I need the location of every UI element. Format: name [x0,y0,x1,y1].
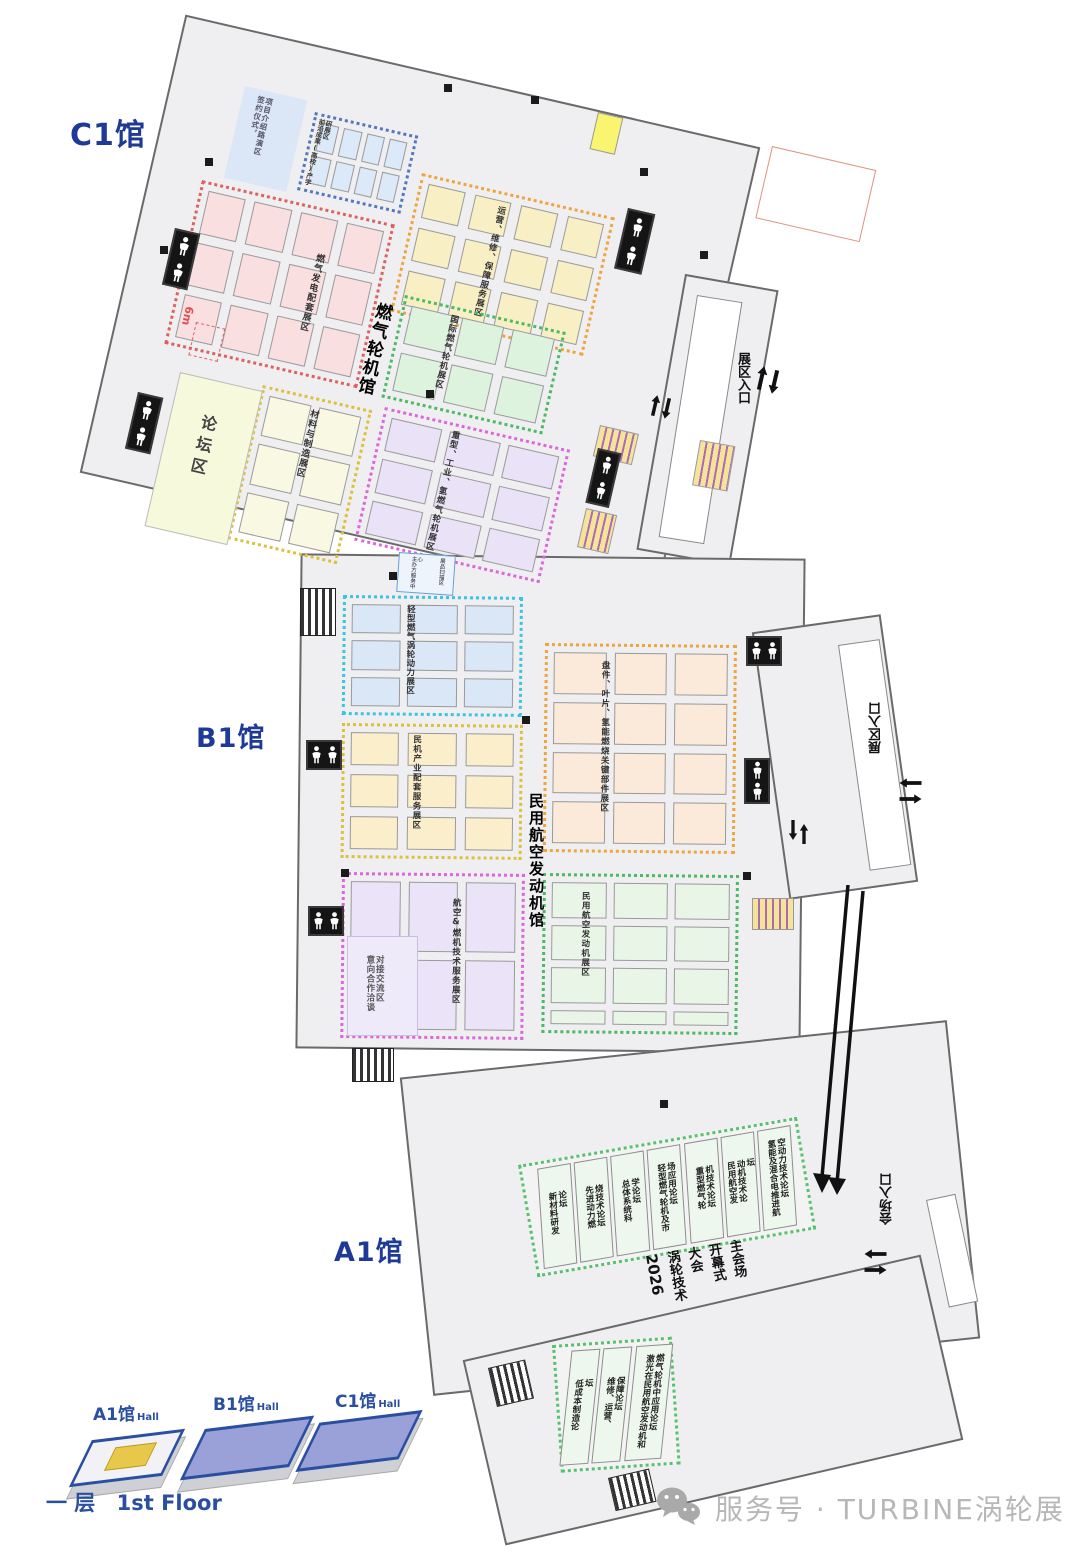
booths [550,882,729,1026]
booth [454,317,505,365]
restroom-icon [308,906,344,936]
zone-civil-engine: 民用航空发动机展区 [541,873,739,1035]
booth [245,201,292,252]
booth [350,774,399,808]
booth [351,640,401,670]
stairwell [300,588,336,636]
forum-room-label: 维修、运营、保障论坛 [600,1376,625,1434]
forum-room: 激光在民用航空发动机和燃气轮机中应用论坛 [624,1344,673,1462]
booth [421,184,465,226]
forum-room-label: 新材料研发论坛 [546,1190,569,1242]
booth [199,191,246,242]
booth [467,194,511,236]
legend-b1-suffix: Hall [257,1402,279,1413]
c1-east-entrance-label: 展区入口 [733,352,752,414]
booth [384,418,442,463]
booth [361,133,385,165]
booth [376,171,400,203]
booth [674,703,727,745]
wechat-icon [655,1486,701,1530]
booth [411,227,455,269]
fire-marker [660,1100,668,1108]
down-arrow-icon [766,369,782,395]
fire-marker [389,572,397,580]
legend-a1-highlight [105,1442,158,1470]
booth [550,259,594,301]
fire-marker [531,96,539,104]
exhibit-scan-label: 展品扫描区 [436,558,444,592]
booth [465,960,515,1031]
zone-key-parts-label: 盘件、叶片、氢能燃烧关键部件展区 [598,661,609,813]
fire-marker [341,869,349,877]
booth [612,968,667,1004]
fire-marker [426,390,434,398]
fire-marker [522,716,530,724]
left-arrow-icon [900,778,922,789]
fire-marker [205,158,213,166]
right-arrow-icon [900,794,922,805]
b1-hall-label: B1馆 [196,716,265,755]
booth [673,803,726,845]
forum-room: 重型燃气轮机技术论坛 [684,1138,724,1244]
booth [613,925,668,961]
booth [408,605,458,635]
forum-area-label: 论坛区 [186,413,218,481]
fire-marker [700,251,708,259]
booth [482,527,540,572]
reserved-area-outline [755,146,876,242]
organizer-service-center: 主办方服务中心 展品扫描区 [396,552,456,596]
booth [383,138,407,170]
legend-a1-suffix: Hall [137,1412,159,1423]
floor-label: 一 层 1st Floor [46,1487,222,1517]
booth [288,503,339,553]
restroom-icon [306,740,342,770]
booth [612,1011,667,1026]
booth [514,205,558,247]
zone-key-parts: 盘件、叶片、氢能燃烧关键部件展区 [543,643,737,854]
b1-east-entrance-label: 展区入口 [867,692,886,754]
booth [465,733,514,767]
forum-room-label: 总体系统科学论坛 [619,1177,642,1229]
booth [375,459,433,504]
forum-room-label: 低成本制造论坛 [567,1378,592,1436]
negotiation-area: 意向合作洽谈对接交流区 [347,936,418,1036]
booth [338,128,362,160]
booth [494,376,545,424]
legend-a1-label: A1馆Hall [93,1400,159,1425]
booth [249,444,300,494]
legend-b1-label: B1馆Hall [213,1390,279,1415]
restroom-icon [746,636,782,666]
booth [352,604,402,634]
booth [351,732,400,766]
booth [351,677,401,707]
forum-room: 先进动力燃烧技术论坛 [574,1157,614,1263]
b1-hall-name: 民用航空发动机馆 [526,793,547,933]
forum-room-label: 重型燃气轮机技术论坛 [692,1165,715,1217]
booth [365,500,423,545]
c1-hall-label: C1馆 [70,110,146,154]
booth [613,802,666,844]
booth [464,817,513,851]
zone-light-turbine-label: 轻型燃气涡轮动力展区 [404,604,414,694]
booth [674,1011,729,1026]
forum-room: 氢能及混合电推进航空动力技术论坛 [757,1125,797,1231]
footer-watermark: 服务号 · TURBINE涡轮展 [655,1486,1065,1530]
booth [233,253,280,304]
booth [465,775,514,809]
forum-room-label: 轻型燃气轮机及市场应用论坛 [655,1161,679,1233]
booth [353,166,377,198]
fire-marker [640,168,648,176]
booth [675,653,728,695]
forum-room: 总体系统科学论坛 [610,1150,650,1256]
escalator [752,898,794,930]
forum-room-label: 激光在民用航空发动机和燃气轮机中应用论坛 [634,1353,664,1451]
booth [614,653,667,695]
booth [613,752,666,794]
booths [350,732,514,851]
left-arrow-icon [865,1249,887,1260]
booths [351,604,514,708]
forum-room-label: 氢能及混合电推进航空动力技术论坛 [765,1137,789,1219]
booth [674,969,729,1005]
zone-civil-engine-label: 民用航空发动机展区 [579,892,589,978]
legend-b1-floor [180,1416,314,1481]
organizer-service-center-label: 主办方服务中心 [408,556,421,591]
flow-arrows-icon [800,885,890,1195]
booth [464,605,514,635]
booth [503,249,547,291]
booths [365,418,559,573]
booth [491,486,549,531]
fire-marker [160,246,168,254]
legend-c1-label: C1馆Hall [335,1387,400,1412]
booth [221,305,268,356]
restroom-icon [744,758,770,804]
booth [464,642,514,672]
fire-marker [743,872,751,880]
booth [550,1010,605,1025]
negotiation-area-label: 意向合作洽谈对接交流区 [365,955,384,1017]
forum-room-label: 先进动力燃烧技术论坛 [583,1183,606,1235]
booth [330,161,354,193]
up-arrow-icon [799,824,809,844]
booth [313,326,360,377]
forum-room-label: 民用航空发动机技术论坛 [724,1157,756,1211]
booth [238,492,289,542]
a1-south-forum-zone: 低成本制造论坛 维修、运营、保障论坛 激光在民用航空发动机和燃气轮机中应用论坛 [552,1337,681,1473]
a1-hall-label: A1馆 [334,1230,404,1269]
booth [408,641,458,671]
legend-c1-suffix: Hall [378,1399,400,1410]
booths [552,652,728,845]
booth [675,883,730,919]
down-arrow-icon [788,820,798,840]
fire-marker [444,84,452,92]
booth [614,702,667,744]
right-arrow-icon [865,1265,887,1276]
booth [465,882,515,953]
booth [443,364,494,412]
stairwell [352,1048,394,1082]
forum-room: 新材料研发论坛 [537,1163,577,1269]
legend-c1-floor [295,1410,422,1472]
booth [504,329,555,377]
legend-a1-floor [69,1429,185,1488]
booth [560,216,604,258]
booth [325,274,372,325]
booth [337,223,384,274]
booth [463,678,513,708]
booth [501,445,559,490]
booth [552,801,605,843]
forum-room: 民用航空发动机技术论坛 [720,1131,760,1237]
booth [613,883,668,919]
floorplan-canvas: 签约仪式， 项目介绍路演区 前沿成果(高校)产学研展区 燃气发电配套展区 运营、… [0,0,1080,1559]
zone-civil-support-label: 民机产业配套服务展区 [410,734,420,829]
zone-light-turbine: 轻型燃气涡轮动力展区 [342,595,523,717]
booth [350,816,399,850]
booth [674,753,727,795]
zone-civil-support: 民机产业配套服务展区 [341,723,523,860]
forum-room: 轻型燃气轮机及市场应用论坛 [647,1144,687,1250]
zone-aviation-service-label: 航空&燃机技术服务展区 [450,899,460,1005]
booth [674,926,729,962]
footer-account-text: 服务号 · TURBINE涡轮展 [715,1488,1065,1528]
